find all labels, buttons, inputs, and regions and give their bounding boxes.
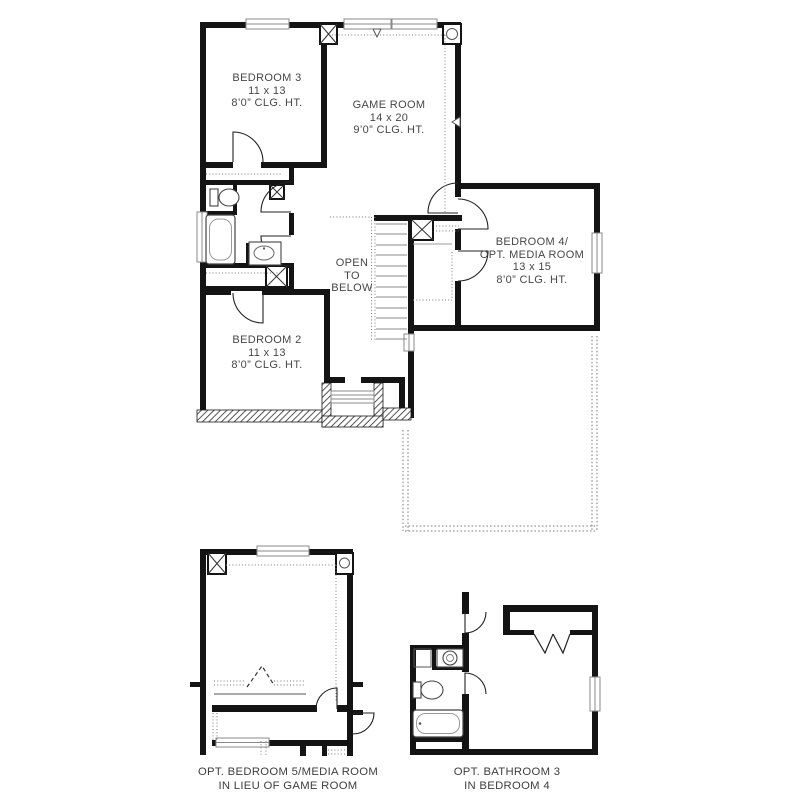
bathtub (413, 710, 463, 737)
column-box-x-icon (266, 266, 287, 287)
hatched-wall-band (197, 383, 411, 427)
toilet (413, 681, 443, 699)
window (216, 738, 269, 747)
bedroom4-label: BEDROOM 4/ OPT. MEDIA ROOM 13 x 15 8’0” … (480, 236, 584, 286)
bathtub (206, 215, 235, 264)
column-box-x-icon (208, 553, 226, 574)
roof-outline-dotted (403, 336, 597, 531)
bedroom3-dims: 11 x 13 (231, 85, 302, 98)
door-swing (428, 183, 458, 213)
opt-bedroom5-caption-line1: OPT. BEDROOM 5/MEDIA ROOM (198, 766, 378, 780)
sink-vanity (249, 242, 281, 265)
bedroom2-label: BEDROOM 2 11 x 13 8’0” CLG. HT. (231, 334, 302, 372)
opt-bedroom5-caption: OPT. BEDROOM 5/MEDIA ROOM IN LIEU OF GAM… (198, 766, 378, 793)
opt-bedroom5-dotted (213, 565, 346, 756)
opt-bedroom5-plan (190, 546, 374, 756)
bedroom3-name: BEDROOM 3 (231, 72, 302, 85)
open-to-below-line1: OPEN (331, 257, 372, 270)
bedroom4-ceiling: 8’0” CLG. HT. (480, 274, 584, 287)
door-swing (465, 673, 486, 694)
opt-bedroom5-caption-line2: IN LIEU OF GAME ROOM (198, 780, 378, 794)
opt-bathroom3-fixtures (413, 649, 463, 737)
window (257, 546, 309, 556)
door-swing (465, 612, 486, 633)
bedroom4-name2: OPT. MEDIA ROOM (480, 249, 584, 262)
window (344, 19, 391, 29)
bedroom2-name: BEDROOM 2 (231, 334, 302, 347)
staircase (376, 224, 407, 339)
column-box-x-icon (411, 219, 433, 240)
sink-vanity (437, 649, 463, 667)
column-box-round-icon (443, 24, 461, 44)
window (331, 391, 374, 403)
opt-bedroom5-windows (216, 546, 309, 747)
column-box-round-icon (336, 553, 353, 574)
door-swing (353, 713, 374, 734)
game-room-ceiling: 9’0” CLG. HT. (353, 124, 426, 137)
bedroom2-ceiling: 8’0” CLG. HT. (231, 359, 302, 372)
open-to-below-line2: TO (331, 270, 372, 283)
opt-bedroom5-walls (190, 549, 363, 756)
door-swing (316, 688, 337, 709)
bedroom3-label: BEDROOM 3 11 x 13 8’0” CLG. HT. (231, 72, 302, 110)
opt-bathroom3-caption-line2: IN BEDROOM 4 (454, 780, 561, 794)
window (592, 233, 602, 273)
opt-bathroom3-plan (410, 592, 600, 755)
bedroom4-name: BEDROOM 4/ (480, 236, 584, 249)
game-room-name: GAME ROOM (353, 99, 426, 112)
game-room-label: GAME ROOM 14 x 20 9’0” CLG. HT. (353, 99, 426, 137)
section-marker-down-icon (373, 29, 381, 37)
window (590, 677, 600, 711)
opt-bathroom3-caption: OPT. BATHROOM 3 IN BEDROOM 4 (454, 766, 561, 793)
open-to-below-line3: BELOW (331, 282, 372, 295)
bathroom-fixtures (206, 189, 281, 265)
window (404, 334, 414, 351)
opt-bathroom3-caption-line1: OPT. BATHROOM 3 (454, 766, 561, 780)
door-swing (233, 293, 263, 323)
bedroom2-dims: 11 x 13 (231, 347, 302, 360)
window (392, 19, 437, 29)
floor-plan-page: BEDROOM 3 11 x 13 8’0” CLG. HT. GAME ROO… (0, 0, 800, 800)
linen-cabinet (414, 649, 431, 667)
bedroom4-dims: 13 x 15 (480, 261, 584, 274)
column-box-x-icon (270, 185, 284, 199)
door-swing (458, 199, 488, 229)
main-columns (266, 24, 461, 287)
optional-riser-dashed (247, 666, 274, 687)
bedroom3-ceiling: 8’0” CLG. HT. (231, 97, 302, 110)
open-to-below-label: OPEN TO BELOW (331, 257, 372, 295)
column-box-x-icon (320, 24, 337, 44)
toilet (210, 189, 239, 206)
window (246, 19, 289, 29)
door-swing (233, 132, 263, 162)
game-room-dims: 14 x 20 (353, 112, 426, 125)
closet-bifold-doors (534, 634, 570, 653)
